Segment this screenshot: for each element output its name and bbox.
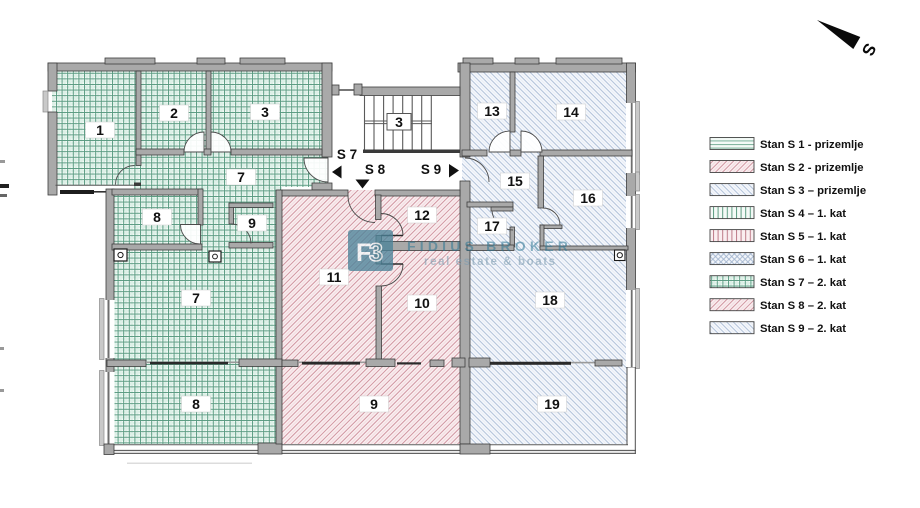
svg-text:14: 14 xyxy=(563,104,579,120)
svg-text:Stan S 3 – prizemlje: Stan S 3 – prizemlje xyxy=(760,185,866,197)
svg-text:Stan S 2 - prizemlje: Stan S 2 - prizemlje xyxy=(760,162,864,174)
svg-text:11: 11 xyxy=(327,269,342,285)
svg-text:Stan S 7 – 2. kat: Stan S 7 – 2. kat xyxy=(760,277,846,289)
svg-text:Stan S 1 - prizemlje: Stan S 1 - prizemlje xyxy=(760,139,864,151)
svg-text:8: 8 xyxy=(153,209,161,225)
svg-text:13: 13 xyxy=(484,103,500,119)
svg-text:S 9: S 9 xyxy=(421,162,441,177)
svg-text:1: 1 xyxy=(96,122,104,138)
svg-text:8: 8 xyxy=(192,396,200,412)
svg-text:FIDIUS BROKER: FIDIUS BROKER xyxy=(407,238,572,254)
svg-text:Stan S 4 – 1. kat: Stan S 4 – 1. kat xyxy=(760,208,846,220)
svg-text:S: S xyxy=(858,40,880,59)
svg-text:16: 16 xyxy=(580,190,596,206)
svg-text:real estate & boats: real estate & boats xyxy=(424,256,557,268)
svg-text:7: 7 xyxy=(192,290,200,306)
svg-text:3: 3 xyxy=(369,239,383,267)
svg-text:S 8: S 8 xyxy=(365,162,386,177)
svg-text:15: 15 xyxy=(507,173,523,189)
svg-text:17: 17 xyxy=(484,218,500,234)
svg-text:9: 9 xyxy=(370,396,378,412)
svg-text:7: 7 xyxy=(237,169,245,185)
svg-text:3: 3 xyxy=(261,104,269,120)
svg-text:Stan S 6 – 1. kat: Stan S 6 – 1. kat xyxy=(760,254,846,266)
svg-text:Stan S 8 – 2. kat: Stan S 8 – 2. kat xyxy=(760,300,846,312)
svg-text:10: 10 xyxy=(414,295,430,311)
svg-text:Stan S 5 – 1. kat: Stan S 5 – 1. kat xyxy=(760,231,846,243)
svg-text:9: 9 xyxy=(248,215,256,231)
svg-text:S 7: S 7 xyxy=(337,147,357,162)
svg-text:Stan S 9 – 2. kat: Stan S 9 – 2. kat xyxy=(760,323,846,335)
svg-text:3: 3 xyxy=(395,114,403,130)
svg-text:18: 18 xyxy=(542,292,558,308)
svg-text:12: 12 xyxy=(414,207,430,223)
svg-text:2: 2 xyxy=(170,105,178,121)
svg-text:19: 19 xyxy=(544,396,560,412)
